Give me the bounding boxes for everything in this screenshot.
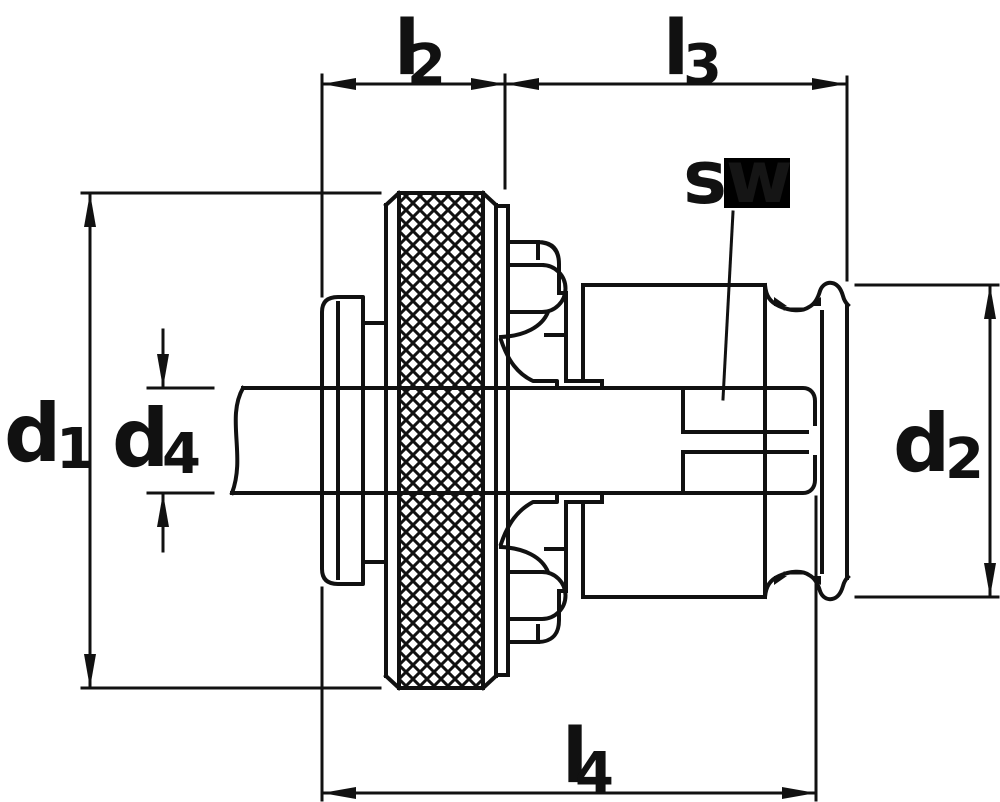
body-outline [566, 285, 765, 597]
label-l3-sub: 3 [683, 33, 722, 98]
clutch-boss-bottom [501, 493, 566, 642]
arrow-l2-left [322, 78, 356, 90]
groove-bottom-profile [765, 572, 848, 599]
shaft-top-line [243, 388, 815, 424]
label-l2-sub: 2 [407, 33, 446, 98]
label-d4-main: d [112, 392, 169, 485]
arrow-d1-top [84, 193, 96, 227]
shaft-break-curve [232, 388, 243, 493]
arrow-l3-right [812, 78, 846, 90]
groove-top-profile [765, 283, 848, 310]
arrow-l3-left [505, 78, 539, 90]
clutch-boss-top [501, 242, 566, 388]
spacer-ring [363, 323, 386, 562]
label-d1-sub: 1 [56, 417, 95, 482]
label-d4-sub: 4 [162, 422, 201, 487]
dimension-labels: l 2 l 3 l 4 d 1 d 4 d 2 s w [4, 3, 984, 802]
tap-adapter-diagram: l 2 l 3 l 4 d 1 d 4 d 2 s w [0, 0, 1000, 802]
arrow-l4-left [322, 787, 356, 799]
label-l4-sub: 4 [575, 741, 614, 802]
groove-tick-tl [774, 297, 787, 306]
arrow-d4-top [157, 354, 169, 388]
groove-tick-bl [774, 576, 787, 585]
arrow-d4-bottom [157, 493, 169, 527]
label-d1-main: d [4, 387, 61, 480]
technical-drawing-canvas: l 2 l 3 l 4 d 1 d 4 d 2 s w [0, 0, 1000, 802]
arrow-l2-right [471, 78, 505, 90]
arrow-d2-bottom [984, 563, 996, 597]
square-socket-lines [683, 388, 807, 493]
label-sw-s: s [683, 135, 727, 221]
part-outline [232, 193, 848, 688]
knurl-hatch [399, 193, 483, 688]
label-d2-main: d [893, 397, 950, 490]
label-d2-sub: 2 [945, 427, 984, 492]
collar-outline [322, 297, 363, 584]
dimension-lines [82, 75, 998, 800]
arrow-d2-top [984, 285, 996, 319]
groove-edge-lines [785, 309, 803, 573]
label-sw-w: w [726, 135, 793, 219]
shaft-bottom-line [232, 457, 815, 493]
arrow-d1-bottom [84, 654, 96, 688]
sw-leader-line [723, 212, 733, 399]
arrow-l4-right [782, 787, 816, 799]
